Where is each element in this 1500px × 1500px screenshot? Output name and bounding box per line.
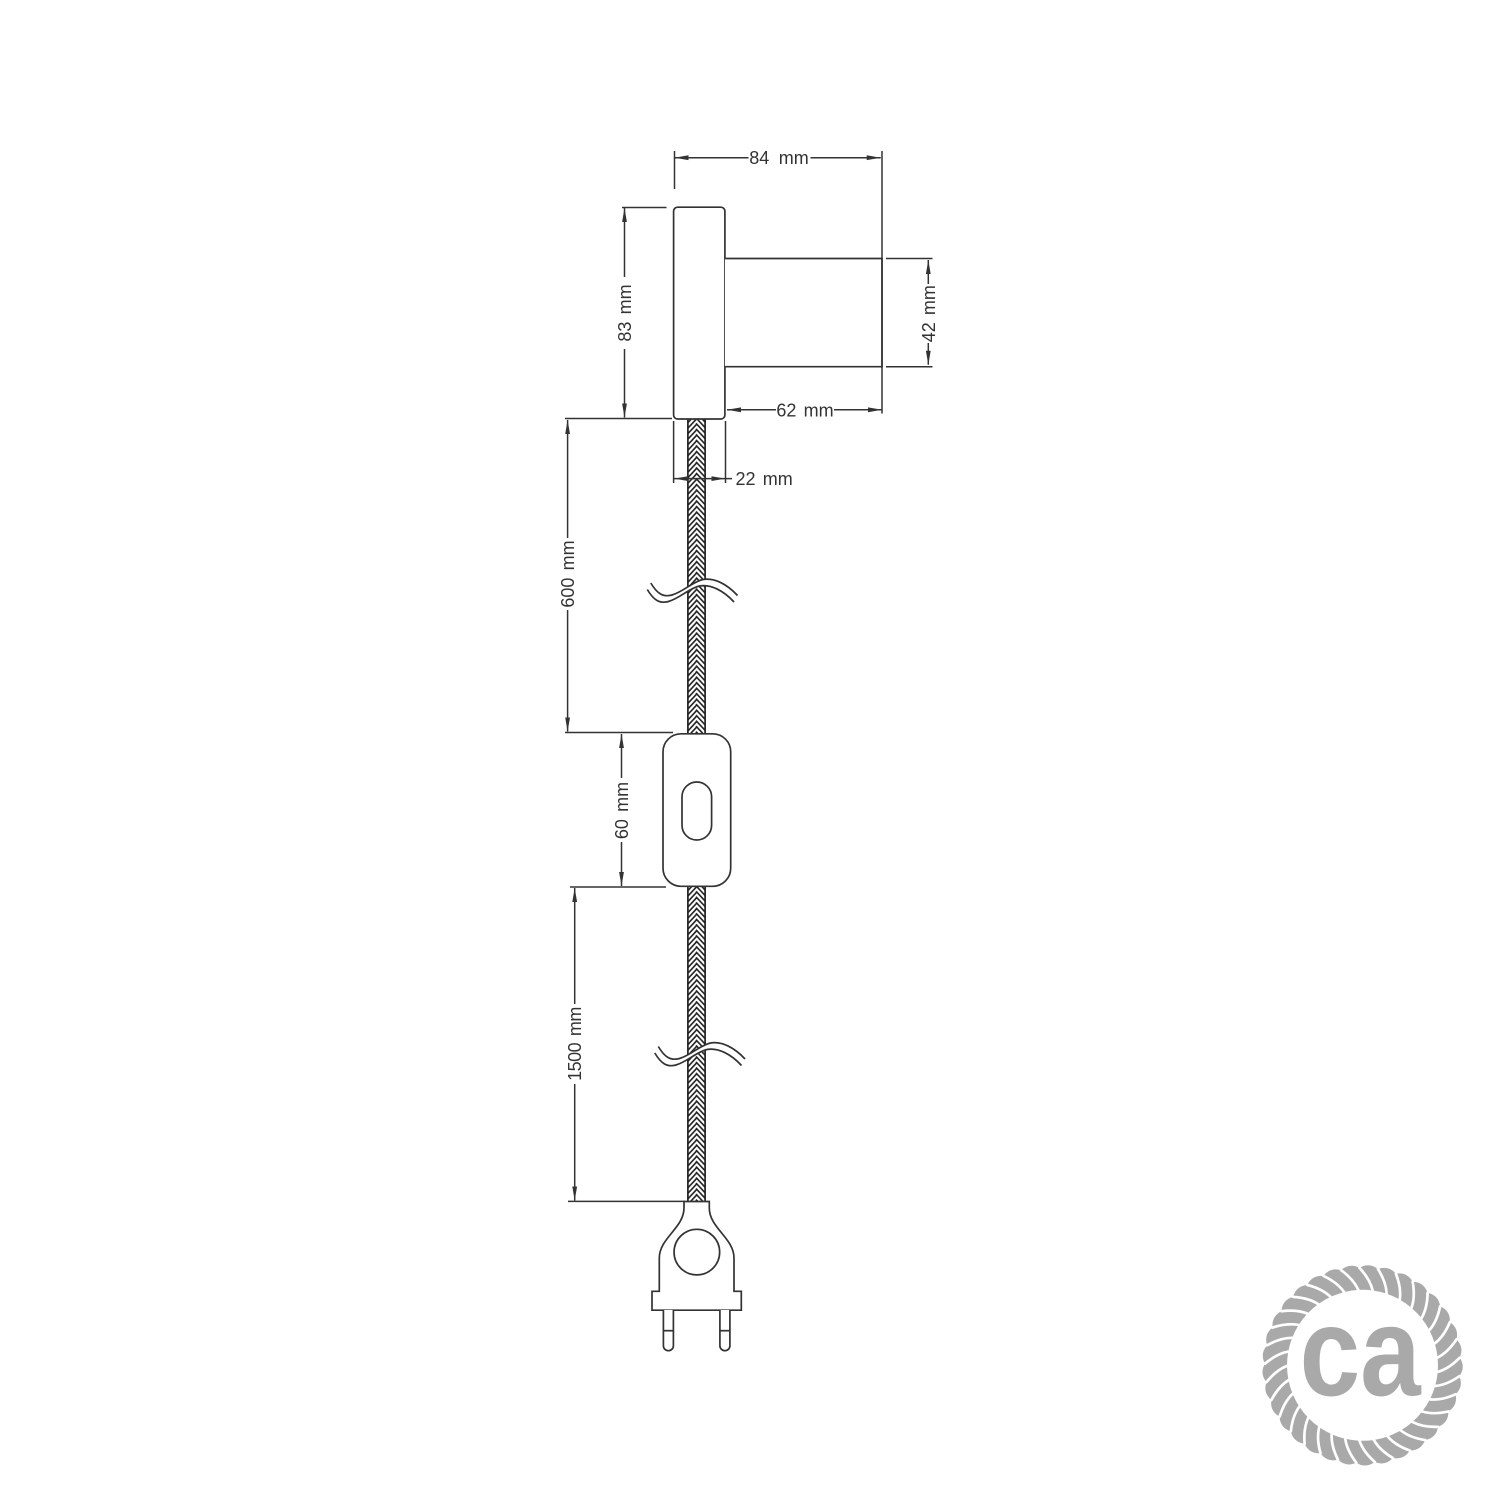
- svg-text:84 mm: 84 mm: [749, 148, 809, 168]
- svg-text:22 mm: 22 mm: [736, 469, 793, 489]
- svg-text:60 mm: 60 mm: [612, 782, 632, 839]
- svg-text:ca: ca: [1300, 1282, 1422, 1424]
- svg-text:83 mm: 83 mm: [615, 284, 635, 341]
- svg-text:42 mm: 42 mm: [919, 285, 939, 342]
- svg-text:62 mm: 62 mm: [776, 400, 833, 420]
- svg-text:1500 mm: 1500 mm: [565, 1007, 585, 1081]
- svg-text:600 mm: 600 mm: [558, 540, 578, 607]
